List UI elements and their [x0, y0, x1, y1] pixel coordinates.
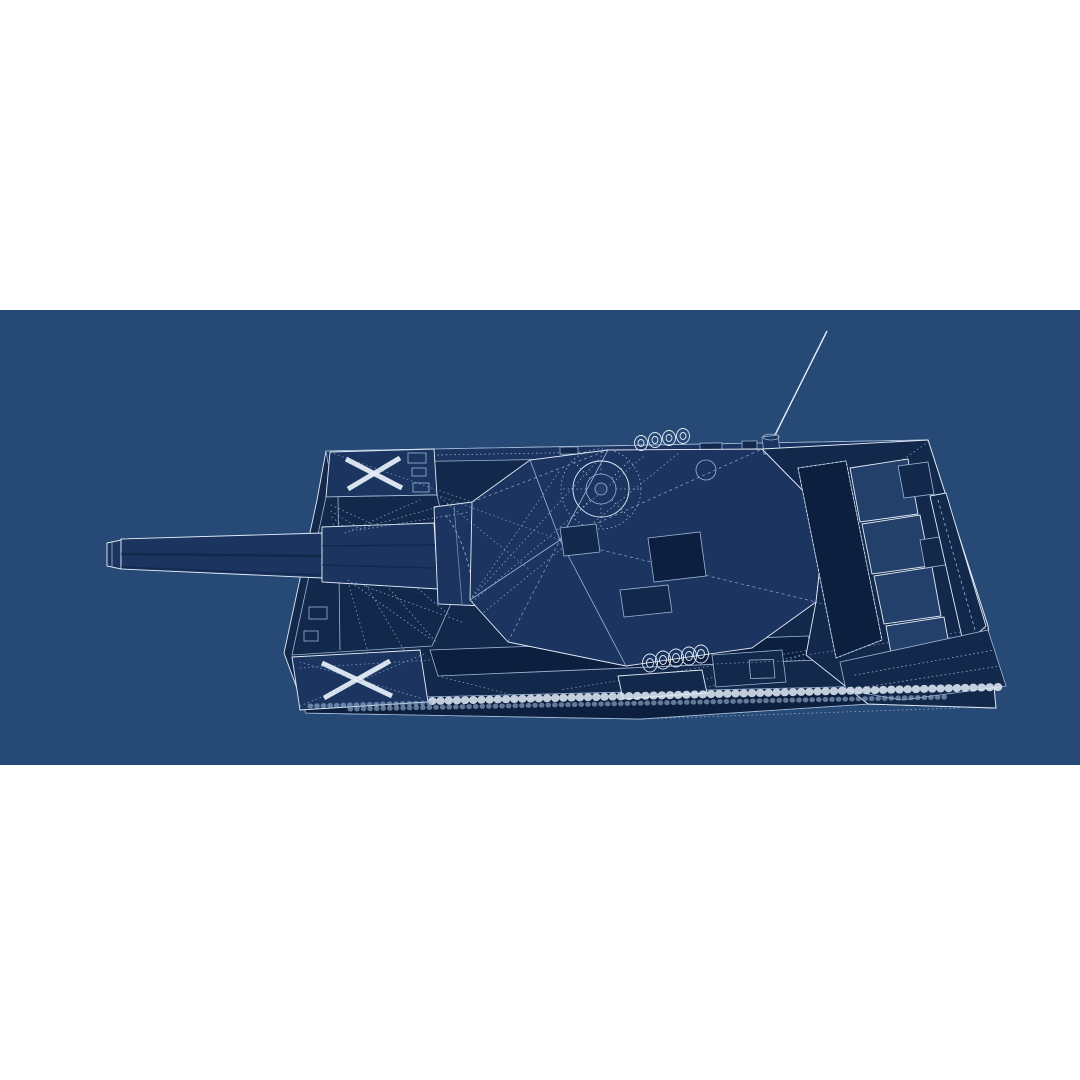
engine-grille-3 [874, 567, 941, 624]
turret-hatch [648, 532, 706, 582]
render-stage [0, 0, 1080, 1080]
turret [470, 449, 826, 666]
turret-rear-box [620, 585, 672, 617]
engine-grille-2 [862, 515, 930, 574]
rear-fender-panel [292, 650, 428, 710]
tank-wireframe-render [0, 0, 1080, 1080]
deck-corner-box [898, 462, 934, 498]
bore-evacuator-sleeve [322, 523, 438, 589]
turret-stowage-box [560, 524, 600, 556]
muzzle [107, 540, 121, 569]
front-fender-panel [326, 449, 437, 497]
hull-rear-plate-panel [712, 650, 786, 687]
